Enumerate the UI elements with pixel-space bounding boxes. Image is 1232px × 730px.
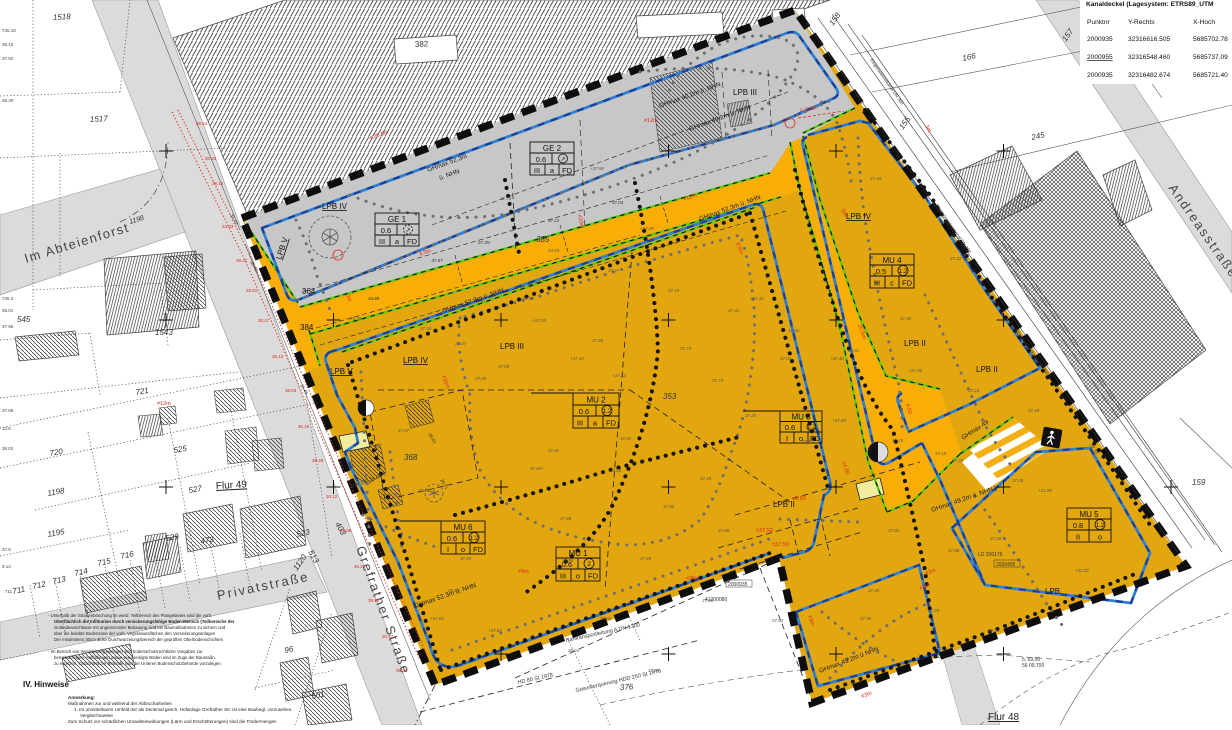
- svg-text:37.73: 37.73: [680, 346, 692, 351]
- svg-text:56 09.700: 56 09.700: [1022, 663, 1044, 669]
- svg-text:±37.50: ±37.50: [756, 528, 773, 534]
- svg-text:37.22: 37.22: [548, 218, 560, 223]
- svg-text:37.23: 37.23: [968, 388, 980, 393]
- svg-text:37.63: 37.63: [610, 468, 622, 473]
- svg-text:III: III: [560, 572, 566, 581]
- svg-text:- Im Bereich von Versickerungs: - Im Bereich von Versickerungsanlagen si…: [48, 649, 203, 654]
- svg-text:37.95: 37.95: [2, 324, 14, 329]
- svg-text:37.65: 37.65: [900, 316, 912, 321]
- svg-text:LPB IV: LPB IV: [846, 212, 872, 221]
- svg-text:37.04: 37.04: [612, 200, 624, 205]
- svg-text:Kanaldeckel (Lagesystem: ETRS8: Kanaldeckel (Lagesystem: ETRS89_UTM: [1086, 1, 1214, 8]
- svg-text:37.56: 37.56: [592, 338, 604, 343]
- svg-text:0.6: 0.6: [579, 407, 589, 416]
- svg-text:38.01: 38.01: [568, 648, 580, 653]
- svg-text:37.25: 37.25: [745, 413, 757, 418]
- svg-text:37.42: 37.42: [728, 308, 740, 313]
- svg-text:o: o: [461, 545, 465, 554]
- svg-text:159: 159: [1192, 478, 1206, 487]
- svg-text:zu ersetzen. Gutachterliche Be: zu ersetzen. Gutachterliche Befunde sind…: [54, 661, 222, 666]
- svg-text:37.28: 37.28: [990, 536, 1002, 541]
- svg-text:37.55: 37.55: [460, 556, 472, 561]
- svg-text:37.18: 37.18: [870, 176, 882, 181]
- svg-text:LPB IV: LPB IV: [322, 202, 348, 211]
- svg-text:37.27: 37.27: [608, 268, 620, 273]
- svg-text:30.47: 30.47: [258, 318, 270, 323]
- svg-text:Anmerkung:: Anmerkung:: [68, 695, 96, 700]
- svg-text:745.2: 745.2: [2, 296, 14, 301]
- svg-text:37.16: 37.16: [420, 326, 432, 331]
- svg-text:LPB III: LPB III: [733, 88, 757, 97]
- svg-text:FD: FD: [473, 545, 484, 554]
- svg-text:2: 2: [587, 561, 591, 568]
- svg-text:37.07: 37.07: [398, 428, 410, 433]
- svg-text:FD: FD: [562, 166, 573, 175]
- svg-text:Geländeanschlüsse mit angrenze: Geländeanschlüsse mit angrenzender Bebau…: [54, 625, 226, 630]
- svg-text:I: I: [786, 434, 788, 443]
- svg-text:37.73: 37.73: [712, 378, 724, 383]
- svg-text:37.85: 37.85: [702, 598, 714, 603]
- svg-text:37.22: 37.22: [950, 256, 962, 261]
- svg-text:0.6: 0.6: [447, 534, 457, 543]
- svg-text:-37.87: -37.87: [430, 258, 443, 263]
- svg-text:9.13: 9.13: [2, 564, 11, 569]
- svg-text:LPB V: LPB V: [330, 367, 353, 376]
- svg-text:37.35: 37.35: [860, 616, 872, 621]
- svg-text:37.28: 37.28: [1028, 408, 1040, 413]
- svg-text:c: c: [890, 279, 894, 288]
- svg-text:III: III: [874, 279, 880, 288]
- svg-text:GE 1: GE 1: [388, 215, 407, 224]
- svg-text:III: III: [379, 237, 385, 246]
- svg-text:384: 384: [300, 323, 314, 332]
- svg-text:37.95: 37.95: [562, 558, 574, 563]
- svg-text:5685737.09: 5685737.09: [1193, 54, 1228, 61]
- svg-text:+37.82: +37.82: [488, 628, 502, 633]
- svg-text:↗: ↗: [405, 228, 410, 234]
- svg-text:LPB III: LPB III: [500, 342, 524, 351]
- svg-text:38.15: 38.15: [368, 598, 380, 603]
- svg-text:37.09: 37.09: [498, 364, 510, 369]
- svg-text:37.01: 37.01: [620, 436, 632, 441]
- svg-text:2000935: 2000935: [1087, 36, 1113, 43]
- svg-text:LPB II: LPB II: [976, 365, 998, 374]
- svg-text:1518: 1518: [53, 12, 72, 22]
- svg-text:37.25: 37.25: [928, 608, 940, 613]
- svg-text:37.09: 37.09: [475, 376, 487, 381]
- svg-text:FD: FD: [606, 419, 617, 428]
- svg-text:0.6: 0.6: [785, 423, 795, 432]
- svg-text:+37.28: +37.28: [640, 226, 654, 231]
- svg-text:+37.40: +37.40: [830, 356, 844, 361]
- svg-text:36.12: 36.12: [212, 181, 224, 186]
- svg-text:37.19: 37.19: [668, 288, 680, 293]
- svg-text:LD 200175: LD 200175: [978, 552, 1003, 558]
- svg-text:- Unterhalb der Straßenböschun: - Unterhalb der Straßenböschung im westl…: [48, 613, 212, 618]
- svg-text:Zum Schutz vor schädlichen Umw: Zum Schutz vor schädlichen Umwelteinwirk…: [68, 719, 277, 724]
- svg-text:1.2: 1.2: [602, 408, 611, 415]
- svg-text:≠20m: ≠20m: [686, 576, 700, 582]
- svg-text:+37.42: +37.42: [750, 296, 764, 301]
- svg-text:37.15: 37.15: [892, 438, 904, 443]
- svg-text:711: 711: [5, 589, 13, 594]
- svg-text:FD: FD: [588, 572, 599, 581]
- svg-text:37.64+: 37.64+: [530, 466, 544, 471]
- svg-text:2000935: 2000935: [1087, 72, 1113, 79]
- svg-text:≠12m: ≠12m: [644, 118, 658, 124]
- svg-text:MU 3: MU 3: [791, 413, 811, 422]
- svg-text:38.01: 38.01: [848, 348, 860, 353]
- svg-text:über die belebte Bodenzone der: über die belebte Bodenzone der vorh. Veg…: [54, 631, 216, 636]
- svg-text:o: o: [576, 572, 580, 581]
- svg-text:+22.90: +22.90: [1038, 488, 1052, 493]
- svg-text:FD: FD: [902, 279, 913, 288]
- svg-text:37.25: 37.25: [700, 476, 712, 481]
- svg-text:III: III: [577, 419, 583, 428]
- svg-text:37.15: 37.15: [802, 439, 814, 444]
- svg-text:MU 4: MU 4: [882, 256, 902, 265]
- svg-text:37.47: 37.47: [455, 341, 467, 346]
- svg-text:37.4N: 37.4N: [478, 240, 491, 245]
- svg-text:+37.42: +37.42: [570, 356, 584, 361]
- svg-text:745.18: 745.18: [2, 28, 16, 33]
- svg-text:37.02: 37.02: [780, 356, 792, 361]
- svg-text:LPB IV: LPB IV: [403, 356, 429, 365]
- svg-text:37.88: 37.88: [718, 528, 730, 533]
- svg-text:Flur 48: Flur 48: [988, 712, 1020, 723]
- svg-text:III: III: [534, 166, 540, 175]
- svg-text:36.12: 36.12: [272, 354, 284, 359]
- svg-text:38.46: 38.46: [312, 458, 324, 463]
- svg-text:I: I: [447, 545, 449, 554]
- svg-text:38.30: 38.30: [2, 98, 14, 103]
- svg-text:385: 385: [536, 235, 550, 244]
- svg-text:545: 545: [17, 315, 31, 324]
- svg-text:MU 5: MU 5: [1079, 510, 1099, 519]
- svg-text:37.86: 37.86: [948, 548, 960, 553]
- svg-text:1517: 1517: [90, 114, 109, 124]
- svg-text:2000495: 2000495: [996, 562, 1016, 568]
- svg-text:37.01: 37.01: [548, 448, 560, 453]
- svg-text:34.89: 34.89: [368, 296, 380, 301]
- svg-text:353: 353: [663, 392, 677, 401]
- svg-text:5685702.78: 5685702.78: [1193, 36, 1228, 43]
- svg-text:1.2: 1.2: [1095, 522, 1104, 529]
- svg-text:37.88: 37.88: [560, 516, 572, 521]
- svg-text:32316482.674: 32316482.674: [1128, 72, 1171, 79]
- svg-text:≠12m: ≠12m: [157, 401, 171, 407]
- svg-text:37.85: 37.85: [648, 668, 660, 673]
- svg-text:37.28: 37.28: [1012, 478, 1024, 483]
- svg-text:14.5: 14.5: [2, 426, 11, 431]
- svg-text:38.01: 38.01: [600, 616, 612, 621]
- svg-text:berücksichtigen. Auffüllungen: berücksichtigen. Auffüllungen sowie veru…: [54, 655, 216, 660]
- svg-text:Maßnahmen zur und während der: Maßnahmen zur und während der Abbrucharb…: [68, 701, 172, 706]
- svg-text:39.78: 39.78: [350, 316, 362, 321]
- svg-text:37.88: 37.88: [2, 408, 14, 413]
- svg-text:Der mindestens 30cm dicke Durc: Der mindestens 30cm dicke Durchwurzelung…: [54, 637, 224, 642]
- svg-text:1.2: 1.2: [898, 268, 907, 275]
- svg-text:Y-Rechts: Y-Rechts: [1128, 19, 1155, 26]
- svg-text:1.2: 1.2: [469, 535, 478, 542]
- svg-text:IV. Hinweise: IV. Hinweise: [23, 680, 70, 689]
- svg-text:37.02: 37.02: [788, 328, 800, 333]
- svg-text:+32.02: +32.02: [1075, 568, 1089, 573]
- svg-text:MU 1: MU 1: [568, 549, 588, 558]
- svg-text:376: 376: [620, 682, 634, 692]
- svg-text:34.63: 34.63: [222, 224, 234, 229]
- svg-text:LPB: LPB: [1045, 587, 1060, 596]
- svg-text:37.02: 37.02: [888, 528, 900, 533]
- svg-text:X-Hoch: X-Hoch: [1193, 19, 1215, 26]
- svg-text:+37.56: +37.56: [590, 166, 604, 171]
- svg-text:32316616.505: 32316616.505: [1128, 36, 1171, 43]
- svg-text:36.64: 36.64: [196, 121, 208, 126]
- svg-text:±37.50: ±37.50: [772, 542, 789, 548]
- svg-text:38.01: 38.01: [2, 308, 14, 313]
- svg-text:32316548.460: 32316548.460: [1128, 54, 1171, 61]
- svg-text:1. Im unmittelbaren Umfeld der: 1. Im unmittelbaren Umfeld der als Denkm…: [74, 707, 293, 712]
- svg-text:Flur 49: Flur 49: [216, 479, 248, 492]
- svg-text:30.12: 30.12: [326, 494, 338, 499]
- svg-text:37.15: 37.15: [935, 451, 947, 456]
- svg-text:GE 2: GE 2: [543, 144, 562, 153]
- svg-text:MU 2: MU 2: [586, 396, 606, 405]
- svg-text:+37.18: +37.18: [520, 296, 534, 301]
- svg-text:37.55: 37.55: [448, 588, 460, 593]
- svg-text:38.63: 38.63: [285, 388, 297, 393]
- svg-text:37.82: 37.82: [772, 618, 784, 623]
- svg-text:o: o: [1098, 533, 1102, 542]
- svg-text:37.69: 37.69: [418, 488, 430, 493]
- svg-text:2000955: 2000955: [1087, 54, 1113, 61]
- svg-text:30.47: 30.47: [382, 634, 394, 639]
- svg-text:37.8: 37.8: [2, 547, 11, 552]
- svg-text:1543: 1543: [155, 328, 173, 337]
- svg-text:+37.26: +37.26: [908, 368, 922, 373]
- svg-text:38.02: 38.02: [2, 446, 14, 451]
- svg-text:38.42: 38.42: [236, 258, 248, 263]
- svg-text:36.45: 36.45: [298, 424, 310, 429]
- svg-text:368: 368: [404, 453, 418, 462]
- svg-text:LPB II: LPB II: [904, 339, 926, 348]
- svg-text:2000935: 2000935: [728, 582, 748, 588]
- svg-text:34.08: 34.08: [340, 528, 352, 533]
- svg-text:Oberflächlich die Infiltration: Oberflächlich die Infiltration durch ver…: [54, 619, 235, 624]
- svg-text:+37.40: +37.40: [832, 418, 846, 423]
- svg-text:FD: FD: [407, 237, 418, 246]
- svg-text:31.74: 31.74: [500, 196, 512, 201]
- svg-text:0.6: 0.6: [536, 155, 546, 164]
- svg-text:+37.82: +37.82: [430, 616, 444, 621]
- svg-text:0.6: 0.6: [381, 226, 391, 235]
- svg-text:382: 382: [415, 39, 429, 49]
- svg-text:Vergleichsweise: Vergleichsweise: [80, 713, 113, 718]
- svg-text:36.31: 36.31: [396, 668, 408, 673]
- svg-text:MU 6: MU 6: [453, 523, 473, 532]
- svg-text:364: 364: [302, 287, 316, 296]
- svg-text:37.85: 37.85: [663, 504, 675, 509]
- svg-text:37.35: 37.35: [868, 588, 880, 593]
- svg-text:≠3m: ≠3m: [518, 569, 529, 575]
- svg-text:36.22: 36.22: [354, 564, 366, 569]
- svg-text:+37.28: +37.28: [532, 318, 546, 323]
- svg-text:34.63: 34.63: [548, 248, 560, 253]
- svg-text:37.92: 37.92: [2, 56, 14, 61]
- svg-text:37.18: 37.18: [472, 298, 484, 303]
- svg-text:II: II: [1076, 533, 1080, 542]
- svg-text:Punktnr: Punktnr: [1087, 19, 1111, 26]
- svg-text:0.8: 0.8: [1073, 521, 1083, 530]
- svg-text:1.2: 1.2: [807, 424, 816, 431]
- svg-text:37.22: 37.22: [952, 458, 964, 463]
- svg-text:±2.50: ±2.50: [792, 496, 806, 502]
- svg-text:0.5: 0.5: [876, 267, 886, 276]
- svg-text:38.15: 38.15: [2, 42, 14, 47]
- svg-text:37.85: 37.85: [640, 556, 652, 561]
- svg-text:5685721.40: 5685721.40: [1193, 72, 1228, 79]
- svg-text:↗: ↗: [560, 157, 565, 163]
- svg-text:30.33: 30.33: [205, 156, 217, 161]
- svg-text:28.51: 28.51: [246, 288, 258, 293]
- svg-text:38.46: 38.46: [988, 628, 1000, 633]
- svg-text:+37.42: +37.42: [612, 373, 626, 378]
